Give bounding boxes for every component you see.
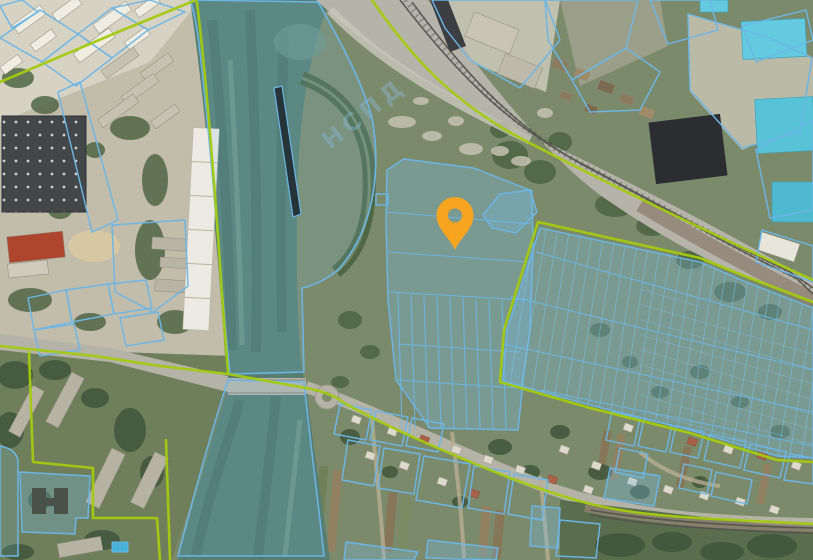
industrial-hall	[2, 116, 86, 212]
dark-industrial-building	[648, 114, 727, 184]
map-canvas[interactable]: НСПД	[0, 0, 813, 560]
pool-parcel[interactable]	[112, 542, 128, 552]
map-svg: НСПД	[0, 0, 813, 560]
red-roof-building	[7, 231, 65, 263]
